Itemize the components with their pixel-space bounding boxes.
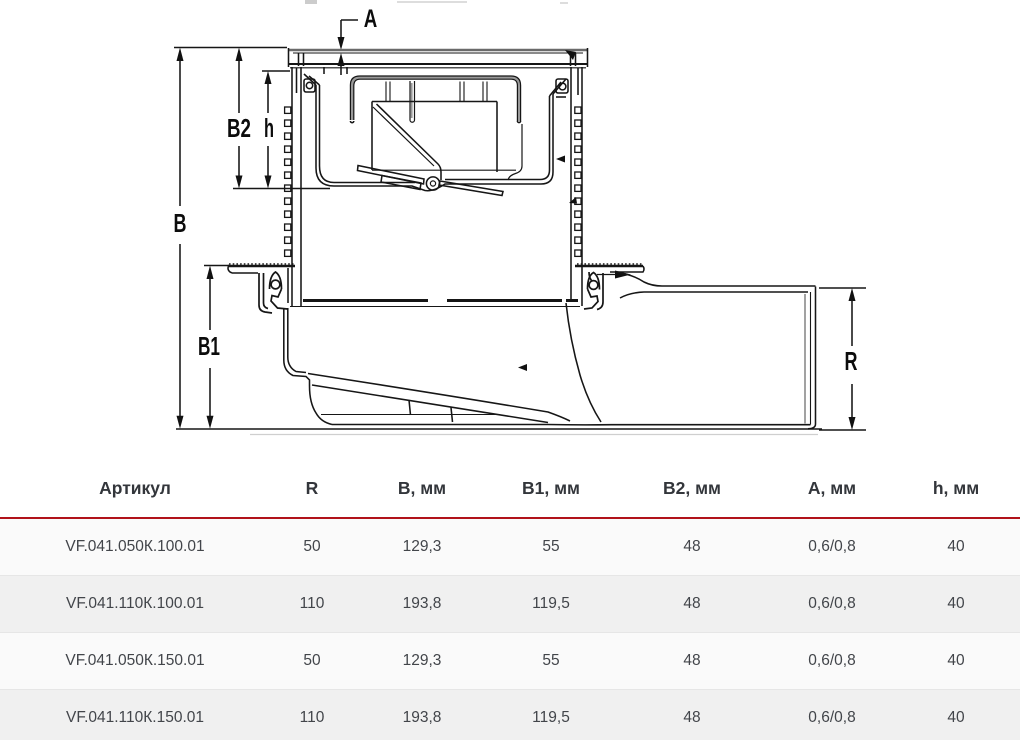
svg-text:h: h [264,115,274,143]
svg-text:R: R [845,348,858,376]
svg-text:A: A [364,5,378,33]
svg-text:B: B [174,208,187,238]
svg-text:B1: B1 [198,333,220,361]
svg-text:B2: B2 [227,115,251,143]
